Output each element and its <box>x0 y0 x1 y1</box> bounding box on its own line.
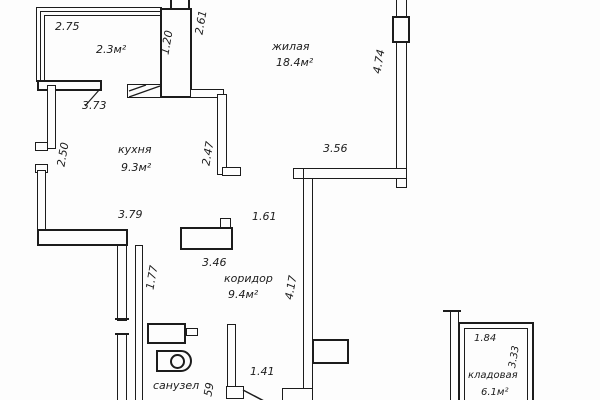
dim-corridor-wall: 3.46 <box>202 257 227 268</box>
window-hatch-2 <box>129 85 146 91</box>
bathroom-room-label: санузел <box>153 380 199 391</box>
dim-storage-top: 1.84 <box>474 334 496 344</box>
dim-corridor-top: 1.61 <box>252 211 277 222</box>
window-hatch-1 <box>129 86 160 97</box>
balcony-area-label: 2.75 <box>55 21 80 32</box>
entry-door-swing <box>243 390 264 400</box>
kitchen-room-label: кухня <box>118 144 151 155</box>
dim-entry-width: 1.41 <box>250 366 275 377</box>
dim-kitchen-bottom: 3.79 <box>118 209 143 220</box>
floor-plan: 2.75 2.3м² жилая 18.4м² кухня 9.3м² кори… <box>0 0 600 400</box>
dim-entry-small: 59 <box>202 379 216 400</box>
corridor-room-label: коридор <box>224 273 273 284</box>
balcony-room-label: 2.3м² <box>96 44 126 55</box>
dim-living-bottom: 3.56 <box>323 143 348 154</box>
living-area-label: 18.4м² <box>276 57 313 68</box>
storage-area-label: 6.1м² <box>481 388 508 398</box>
living-room-label: жилая <box>272 41 309 52</box>
kitchen-area-label: 9.3м² <box>121 162 151 173</box>
dim-kitchen-top: 3.73 <box>82 100 107 111</box>
corridor-area-label: 9.4м² <box>228 289 258 300</box>
storage-room-label: кладовая <box>468 371 518 381</box>
